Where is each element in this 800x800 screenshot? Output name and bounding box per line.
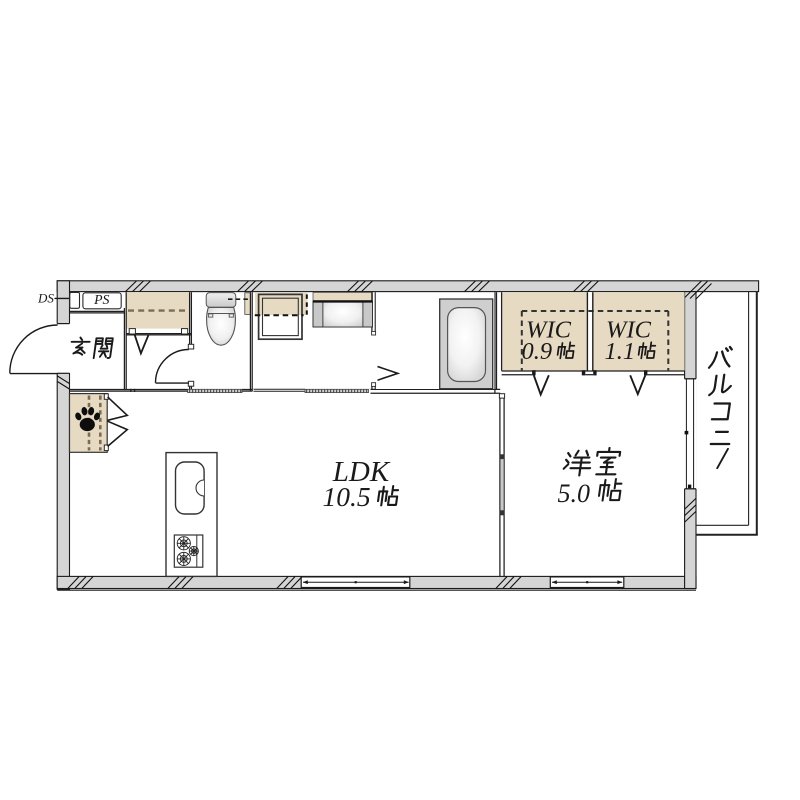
svg-text:5.0: 5.0 — [558, 479, 591, 508]
svg-text:PS: PS — [93, 292, 109, 307]
svg-text:1.1: 1.1 — [605, 338, 636, 365]
svg-text:10.5: 10.5 — [323, 481, 371, 512]
svg-text:DS: DS — [37, 291, 54, 306]
svg-text:0.9: 0.9 — [522, 338, 553, 365]
